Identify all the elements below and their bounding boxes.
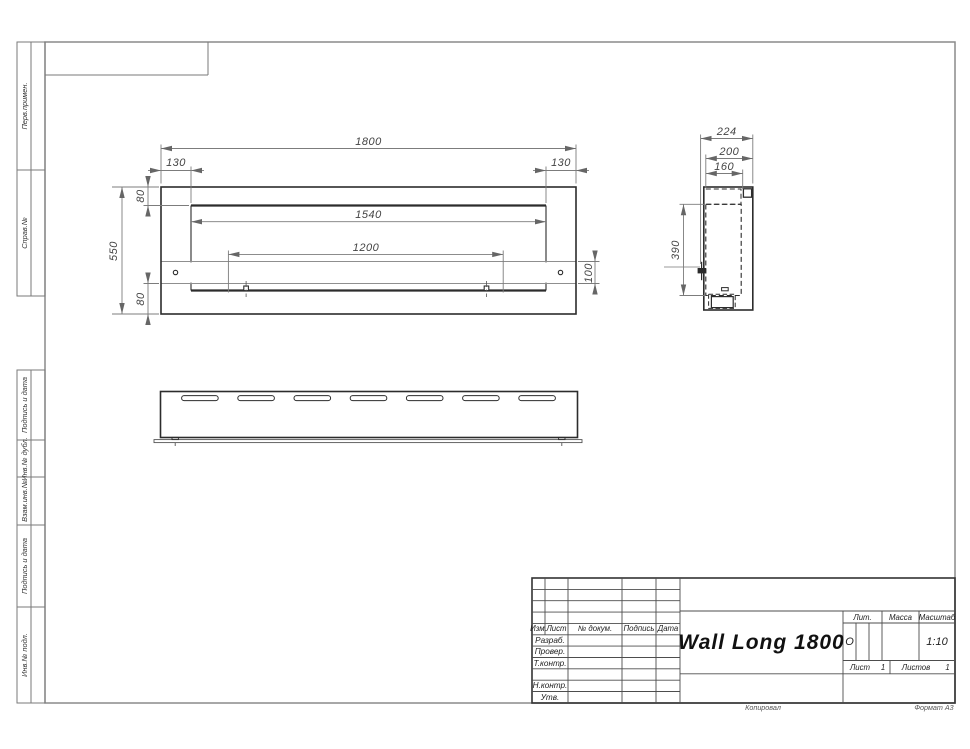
side-view [664, 187, 753, 310]
title-block-grid [532, 578, 955, 703]
side-body [704, 187, 753, 310]
side-top-notch [743, 189, 751, 197]
vent-slots [182, 396, 556, 401]
bottom-view [154, 392, 582, 447]
side-wall-bracket [698, 268, 707, 273]
docref-box [45, 42, 208, 75]
bottom-body [161, 392, 578, 438]
front-view [161, 187, 576, 314]
base-plate [154, 440, 582, 443]
mount-strip [162, 262, 575, 282]
strip-hole-right [558, 270, 562, 274]
drawing-linework [0, 0, 970, 749]
sheet-frame [45, 42, 955, 703]
strip-hole-left [173, 270, 177, 274]
drawing-sheet: Перв.примен. Справ.№ Подпись и дата Инв.… [0, 0, 970, 749]
margin-column [17, 42, 45, 703]
dimension-lines [112, 135, 753, 323]
